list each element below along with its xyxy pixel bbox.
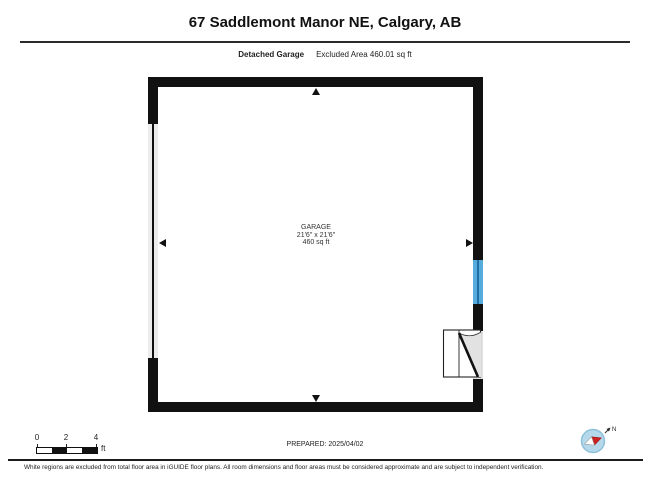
scale-segment: [67, 448, 82, 453]
footer-divider: [8, 459, 643, 461]
room-label: GARAGE 21'6" x 21'6" 460 sq ft: [240, 224, 392, 247]
floorplan-page: 67 Saddlemont Manor NE, Calgary, AB Deta…: [0, 0, 650, 502]
dimension-arrow-left-icon: [159, 239, 166, 247]
scale-bar: [36, 447, 98, 454]
window: [473, 259, 483, 306]
compass-north-label: N: [612, 427, 616, 433]
door-swing: [440, 326, 488, 382]
wall-right-lower: [473, 379, 483, 402]
disclaimer-text: White regions are excluded from total fl…: [24, 464, 634, 471]
garage-door: [148, 124, 158, 358]
wall-left-lower: [148, 358, 158, 402]
wall-bottom: [148, 402, 483, 412]
wall-right-upper: [473, 87, 483, 259]
title-divider: [20, 41, 630, 43]
scale-segment: [37, 448, 52, 453]
scale-tick-2: 2: [64, 433, 68, 442]
compass-icon: N: [576, 421, 622, 461]
room-dimensions: 21'6" x 21'6": [240, 232, 392, 240]
scale-tick-4: 4: [94, 433, 98, 442]
room-area: 460 sq ft: [240, 239, 392, 247]
wall-top: [148, 77, 483, 87]
scale-segment: [52, 448, 67, 453]
dimension-arrow-up-icon: [312, 88, 320, 95]
scale-segment: [82, 448, 97, 453]
scale-unit-label: ft: [101, 444, 105, 453]
excluded-area-label: Excluded Area 460.01 sq ft: [316, 50, 412, 59]
room-name: GARAGE: [240, 224, 392, 232]
floor-label: Detached Garage: [238, 50, 304, 59]
dimension-arrow-down-icon: [312, 395, 320, 402]
dimension-arrow-right-icon: [466, 239, 473, 247]
wall-left-upper: [148, 87, 158, 124]
page-title: 67 Saddlemont Manor NE, Calgary, AB: [0, 14, 650, 31]
garage-door-panel-line: [152, 124, 154, 358]
scale-tick-0: 0: [35, 433, 39, 442]
prepared-date: PREPARED: 2025/04/02: [245, 441, 405, 448]
window-glass-line: [477, 260, 479, 305]
plan-subtitle: Detached GarageExcluded Area 460.01 sq f…: [0, 50, 650, 59]
